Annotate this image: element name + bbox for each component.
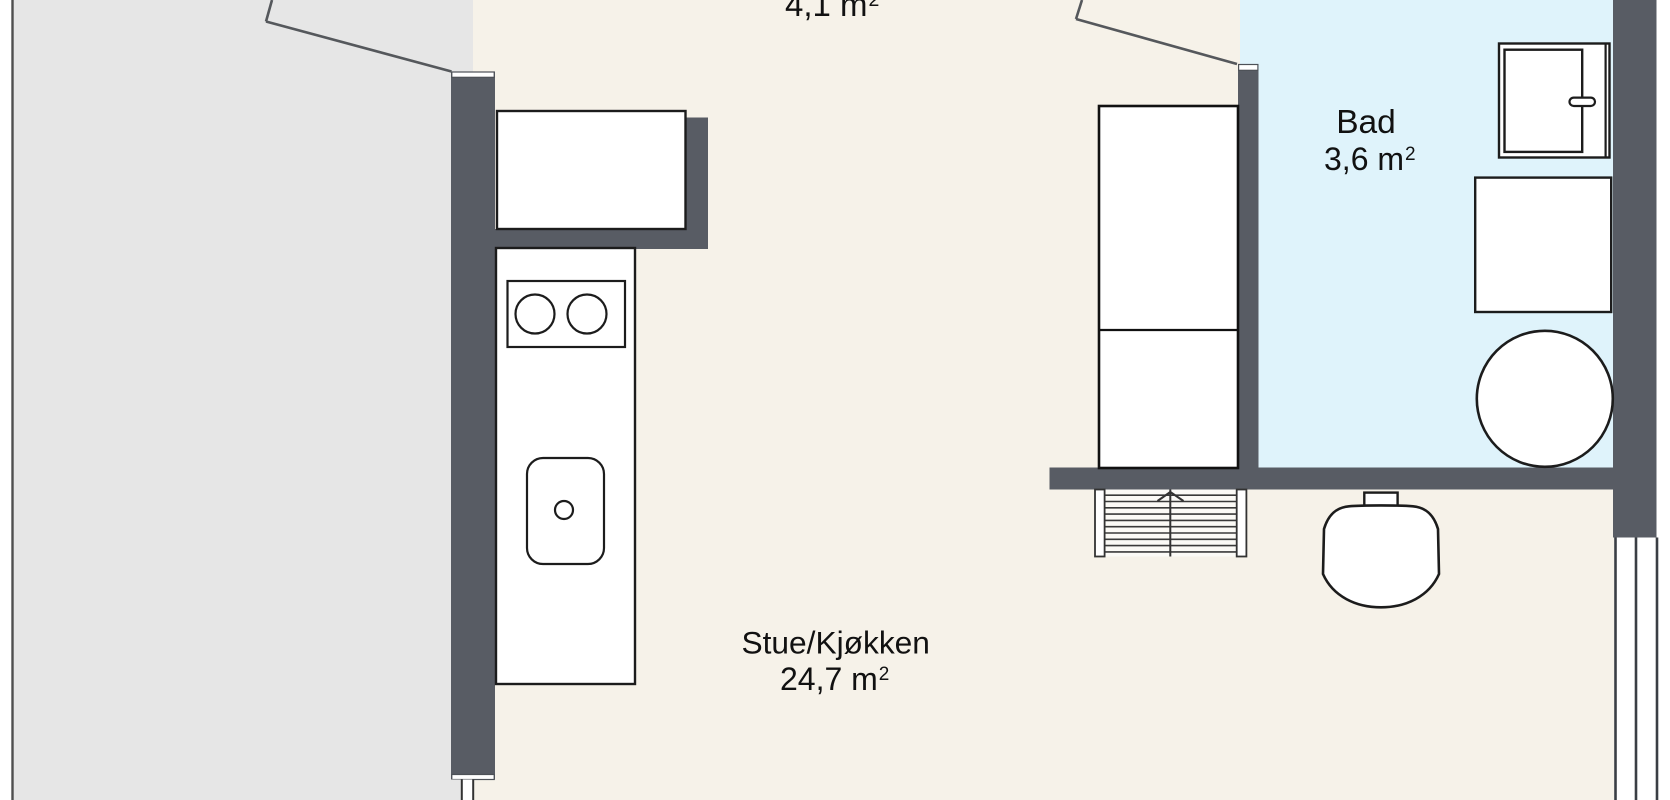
svg-text:4,1 m: 4,1 m [785,0,868,23]
svg-text:Stue/Kjøkken: Stue/Kjøkken [741,625,929,661]
svg-text:2: 2 [1405,144,1416,165]
svg-text:2: 2 [879,664,890,685]
svg-text:3,6 m: 3,6 m [1324,141,1404,177]
svg-text:2: 2 [869,0,880,11]
svg-text:24,7 m: 24,7 m [780,661,878,697]
svg-text:Bad: Bad [1336,104,1396,141]
